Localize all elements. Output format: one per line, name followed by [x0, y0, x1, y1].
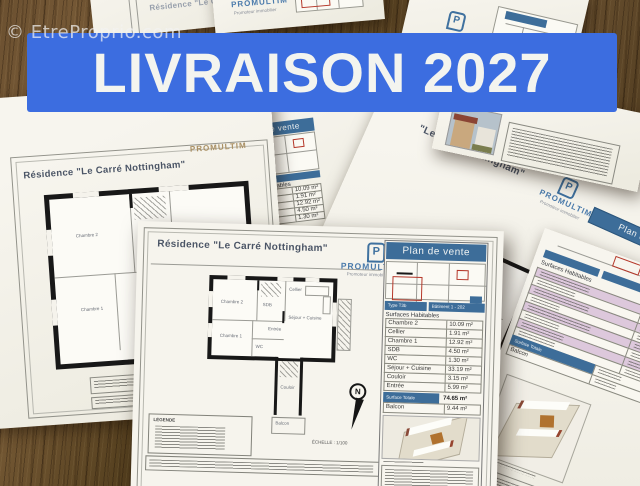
type-chip: Type T3b — [385, 301, 427, 311]
lot-chip: Bâtiment 1 - 202 — [429, 302, 485, 313]
bathroom-hatch — [261, 282, 281, 297]
window — [73, 191, 99, 198]
unit-highlight — [392, 276, 423, 301]
panel-header: Plan de vente — [386, 242, 486, 262]
livraison-banner: LIVRAISON 2027 — [27, 33, 617, 112]
window — [305, 278, 319, 282]
window — [51, 299, 58, 325]
document-main: Résidence "Le Carré Nottingham" P PROMUL… — [130, 221, 504, 486]
unit-mark — [456, 270, 468, 280]
brand-p-icon: P — [367, 242, 386, 262]
panel-plan-de-vente: Plan de vente Type T3b Bâtiment 1 - 202 … — [378, 240, 489, 486]
plan-line — [335, 0, 340, 8]
room-label: Balcon — [275, 421, 289, 426]
scale-note: ÉCHELLE : 1/100 — [312, 440, 348, 445]
brand-tagline: Promoteur immobilier — [234, 7, 277, 15]
window — [159, 185, 189, 192]
watermark: © EtreProprio.com — [6, 22, 182, 43]
partition — [252, 338, 284, 340]
window — [209, 291, 213, 307]
room-label: Chambre 1 — [81, 306, 104, 312]
banner-text: LIVRAISON 2027 — [27, 33, 617, 113]
axo-wall — [516, 429, 563, 437]
compass-needle — [348, 398, 364, 431]
balcony-label: Balcon — [383, 402, 444, 415]
window — [332, 302, 337, 326]
room-label: Séjour + Cuisine — [288, 315, 321, 320]
room-label: Entrée — [268, 327, 281, 332]
corridor-gap — [278, 353, 300, 359]
north-compass: N — [342, 383, 374, 440]
mini-plan-header — [505, 11, 548, 28]
room-label: Cellier — [289, 287, 302, 292]
axo-wall — [517, 400, 570, 410]
document-under-topmiddle: PROMULTIM Promoteur immobilier — [210, 0, 385, 34]
faux-text — [385, 469, 473, 486]
surfaces-table: Chambre 210.09 m² Cellier1.91 m² Chambre… — [383, 319, 484, 416]
room-label: SDB — [263, 303, 272, 308]
legend-title: LÉGENDE — [153, 418, 175, 423]
total-label: Surface Totale — [386, 395, 415, 400]
type-chip-label: Type T3b — [388, 303, 407, 308]
wall-stub — [257, 280, 259, 290]
room-label: Couloir — [280, 385, 294, 390]
partition — [284, 281, 286, 321]
photo-scene: Résidence "Le Carré Nottingham" PROMULTI… — [0, 0, 640, 486]
unit-mark — [293, 138, 305, 148]
brand-p-icon: P — [446, 10, 467, 32]
room-label: WC — [255, 344, 263, 349]
faux-text — [149, 459, 373, 472]
total-chip: Surface Totale — [383, 392, 439, 404]
chip-row: Type T3b Bâtiment 1 - 202 — [385, 301, 485, 313]
disclaimer-block — [381, 465, 480, 486]
mini-floorplan — [292, 0, 364, 13]
stair-hatch — [280, 361, 298, 377]
room-label: Chambre 1 — [220, 333, 242, 338]
kitchen-counter — [322, 296, 330, 314]
unit-highlight — [300, 0, 331, 8]
axo-accent — [540, 415, 554, 427]
balcony-strip — [336, 299, 351, 351]
wall-stub — [129, 194, 133, 208]
room-label: Chambre 2 — [76, 232, 99, 238]
window — [208, 323, 212, 337]
lot-chip-label: Bâtiment 1 - 202 — [432, 304, 465, 309]
mini-floorplan — [385, 261, 486, 302]
window — [46, 230, 53, 256]
faux-text — [155, 426, 226, 451]
floorplan: Chambre 2 SDB Cellier Séjour + Cuisine C… — [207, 275, 337, 363]
room-label: Chambre 2 — [221, 299, 243, 304]
balcony-value: 9.44 m² — [444, 403, 481, 415]
legend-box: LÉGENDE — [148, 413, 253, 456]
faux-caption — [383, 461, 423, 465]
partition — [114, 273, 120, 350]
bathroom-hatch — [133, 196, 166, 220]
kitchen-counter — [305, 286, 329, 297]
window — [227, 276, 245, 281]
wall — [397, 272, 413, 274]
wall-stub — [282, 311, 284, 323]
axonometric-render — [381, 415, 480, 462]
partition — [212, 319, 284, 322]
balcony-row: Balcon 9.44 m² — [383, 402, 481, 416]
